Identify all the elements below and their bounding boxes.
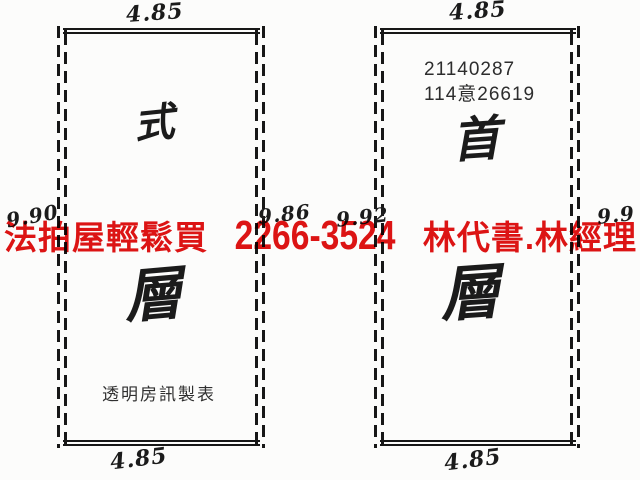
- right-plan-floor-character-bottom: 層: [438, 262, 502, 326]
- left-plan-top-border-outer: [63, 28, 260, 30]
- right-plan-top-border-inner: [380, 32, 576, 34]
- left-plan-floor-character-top: 式: [132, 102, 176, 146]
- publisher-caption: 透明房訊製表: [102, 386, 216, 403]
- left-plan-top-border-inner: [63, 32, 260, 34]
- case-number-line2: 114意26619: [424, 82, 535, 107]
- watermark-banner: 法拍屋輕鬆買 2266-3524 林代書.林經理: [4, 215, 637, 256]
- watermark-contact-text: 林代書.林經理: [423, 221, 637, 254]
- left-plan-floor-character-bottom: 層: [122, 264, 185, 327]
- case-number-line1: 21140287: [424, 57, 535, 82]
- right-plan-bottom-width-label: 4.85: [443, 446, 503, 475]
- watermark-phone-number: 2266-3524: [235, 215, 396, 256]
- left-plan-bottom-border-inner: [63, 440, 260, 442]
- case-number-block: 21140287 114意26619: [424, 57, 535, 107]
- right-plan-bottom-border-inner: [380, 440, 576, 442]
- left-plan-bottom-width-label: 4.85: [109, 445, 169, 474]
- left-plan-top-width-label: 4.85: [125, 0, 184, 26]
- right-plan-top-border-outer: [380, 28, 576, 30]
- right-plan-top-width-label: 4.85: [448, 0, 507, 24]
- scanned-floor-plan-sheet: 4.85 4.85 4.85 4.85 9.90 9.86 9.92 9.9 式…: [0, 0, 640, 480]
- right-plan-floor-character-top: 首: [450, 114, 501, 165]
- watermark-brand-text: 法拍屋輕鬆買: [4, 221, 208, 254]
